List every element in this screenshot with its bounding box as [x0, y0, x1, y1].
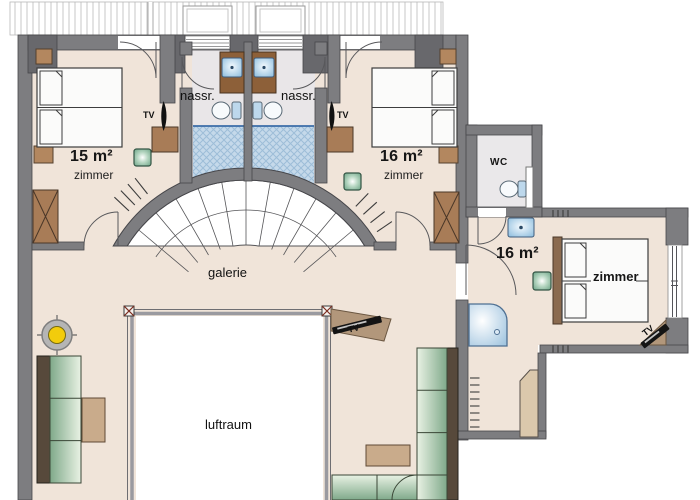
room-topright-area-label: 16 m²: [380, 149, 423, 165]
void-railing: [124, 306, 332, 500]
bathroom-right-label: nassr.: [281, 89, 316, 102]
wardrobe-room-left: [33, 190, 58, 243]
tv-column-right: [327, 127, 353, 152]
corridor-wardrobe: [520, 370, 538, 437]
suite-shower: [469, 304, 507, 346]
tv-column-left: [152, 127, 178, 152]
room-left-area-label: 15 m²: [70, 149, 113, 165]
wall-room16-left: [328, 35, 340, 103]
void-label: luftraum: [205, 418, 252, 431]
tv-label-room-left: TV: [143, 111, 155, 120]
bed-room-topright: [372, 68, 457, 147]
wall-left: [18, 35, 32, 500]
wall-room15-right: [160, 35, 175, 103]
sofa-left: [37, 356, 81, 483]
opening-wc-door: [478, 208, 506, 217]
room-left-type-label: zimmer: [74, 169, 113, 181]
wall-suite-bottom: [540, 345, 688, 353]
coffee-table-bottom: [366, 445, 410, 466]
wall-corridor-right: [538, 353, 546, 437]
window-bath-right: [258, 36, 303, 49]
tv-label-room-topright: TV: [337, 111, 349, 120]
suite-area-label: 16 m²: [496, 246, 539, 262]
wall-wc-left: [466, 125, 477, 217]
dormer-right: [256, 6, 305, 35]
bathroom-left-label: nassr.: [180, 89, 215, 102]
void-area: [136, 316, 323, 500]
wall-wc-top: [466, 125, 542, 135]
wc-label: WC: [490, 158, 508, 168]
wardrobe-room-topright: [434, 192, 459, 243]
suite-sink: [508, 218, 534, 237]
floor-plan: 15 m² zimmer 16 m² zimmer nassr. nassr. …: [0, 0, 700, 500]
bed-room-left: [37, 68, 122, 147]
room-topright-type-label: zimmer: [384, 169, 423, 181]
gallery-label: galerie: [208, 266, 247, 279]
wall-bath-right: [315, 88, 327, 183]
coffee-table-left: [82, 398, 105, 442]
wc-floor: [476, 133, 532, 209]
floor-plan-drawing: [0, 0, 700, 500]
suite-type-label: zimmer: [593, 270, 639, 283]
wall-suite-right-upper: [666, 208, 688, 245]
dormer-left: [183, 6, 232, 35]
wall-bath-center: [244, 42, 252, 181]
